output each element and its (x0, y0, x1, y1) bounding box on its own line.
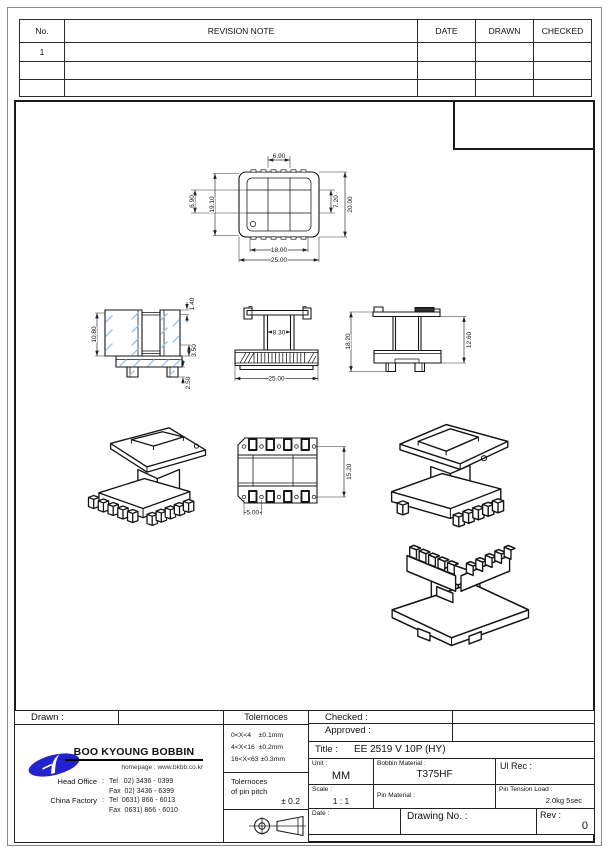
dimension-label: 3.50 (191, 344, 198, 357)
rev-cell: Rev : 0 (536, 808, 595, 835)
revision-row (20, 80, 592, 97)
projection-symbol-cell (223, 809, 309, 843)
pin-pitch-tolerance-cell: Tolernoces of pin pitch ± 0.2 (223, 772, 309, 810)
dimension-label: 15.20 (346, 463, 353, 480)
company-cell: BOO KYOUNG BOBBIN homepage : www.bkbb.co… (14, 724, 224, 843)
contact-row: China Factory : Tel 0631) 866 - 6013 (25, 796, 221, 806)
contact-label: China Factory (25, 796, 97, 806)
view-iso-bottom (392, 545, 528, 645)
view-side: 18.20 12.60 (345, 307, 473, 372)
bobbin-material-label: Bobbin Material : (377, 760, 426, 767)
drawing-no-cell: Drawing No. : (400, 808, 537, 835)
pin-tension-value: 2.0kg 5sec (546, 796, 582, 805)
revision-row (20, 62, 592, 80)
unit-label: Unit : (312, 760, 327, 767)
dimension-label: 1.40 (189, 297, 196, 310)
bobbin-material-cell: Bobbin Material : T375HF (373, 758, 496, 785)
tolerances-header: Tolernoces (244, 712, 288, 722)
pin-material-label: Pin Material : (377, 792, 415, 799)
rev-col-drawn: DRAWN (476, 20, 534, 43)
drawing-no-label: Drawing No. : (407, 811, 468, 822)
dimension-label: 6.90 (189, 195, 196, 208)
scale-value: 1 : 1 (309, 796, 373, 806)
unit-cell: Unit : MM (308, 758, 374, 785)
dimension-label: 5.00 (246, 510, 259, 517)
date-cell: Date : (308, 808, 401, 835)
bobbin-material-value: T375HF (374, 769, 495, 780)
contact-value: Fax 0631) 866 - 6010 (109, 806, 221, 816)
contact-value: Tel 02) 3436 - 0399 (109, 777, 221, 787)
drawing-title: EE 2519 V 10P (HY) (354, 744, 446, 755)
revision-table: No. REVISION NOTE DATE DRAWN CHECKED 1 (19, 19, 592, 97)
drawn-label: Drawn : (31, 712, 64, 723)
scale-label: Scale : (312, 786, 332, 793)
ul-rec-label: Ul Rec : (500, 761, 532, 771)
pin-pitch-value: ± 0.2 (281, 796, 300, 806)
title-label: Title : (315, 744, 338, 755)
dimension-label: 10.80 (91, 326, 98, 343)
date-label: Date : (312, 810, 329, 817)
dimension-label: 18.00 (271, 247, 288, 254)
rev-label: Rev : (540, 810, 561, 820)
dimension-label: 2.50 (185, 376, 192, 389)
revision-row: 1 (20, 43, 592, 62)
contact-row: Fax 02) 3436 - 6399 (25, 787, 221, 797)
rev-col-date: DATE (418, 20, 476, 43)
pin-tension-cell: Pin Tension Load : 2.0kg 5sec (495, 784, 595, 809)
rev-col-no: No. (20, 20, 65, 43)
first-angle-projection-icon (224, 810, 308, 842)
rev-no-cell: 1 (20, 43, 65, 62)
approved-label: Approved : (325, 725, 371, 736)
checked-label: Checked : (325, 712, 368, 723)
view-bottom: 5.00 15.20 (238, 438, 353, 517)
tolerance-lines: 0<X<4 ±0.1mm 4<X<16 ±0.2mm 16<X<63 ±0.3m… (224, 725, 308, 766)
pin-tension-label: Pin Tension Load : (499, 786, 552, 793)
title-cell: Title : EE 2519 V 10P (HY) (308, 741, 595, 759)
view-iso-top-left (89, 428, 206, 526)
view-iso-top-right (392, 425, 508, 527)
technical-drawing-views: 6.90 6.90 19.10 7.20 20.00 18.00 25.00 (14, 100, 595, 710)
dimension-label: 20.00 (347, 196, 354, 213)
drawn-value-cell (118, 710, 224, 725)
ul-rec-cell: Ul Rec : (495, 758, 595, 785)
unit-value: MM (309, 770, 373, 782)
rev-col-checked: CHECKED (534, 20, 592, 43)
dimension-label: 19.10 (209, 196, 216, 213)
checked-value-cell (452, 710, 595, 724)
rev-value: 0 (582, 820, 588, 832)
company-name: BOO KYOUNG BOBBIN (65, 746, 203, 761)
contact-label: Head Office (25, 777, 97, 787)
dimension-label: 25.00 (268, 376, 285, 383)
contact-value: Tel 0631) 866 - 6013 (109, 796, 221, 806)
checked-cell: Checked : (308, 710, 453, 724)
contact-row: Head Office : Tel 02) 3436 - 0399 (25, 777, 221, 787)
dimension-label: 12.60 (466, 331, 473, 348)
dimension-label: 7.20 (333, 195, 340, 208)
drawn-cell: Drawn : (14, 710, 119, 725)
view-section: 1.40 10.80 3.50 2.50 (91, 297, 198, 389)
tolerances-values-cell: 0<X<4 ±0.1mm 4<X<16 ±0.2mm 16<X<63 ±0.3m… (223, 724, 309, 773)
approved-value-cell (452, 723, 595, 742)
rev-col-note: REVISION NOTE (65, 20, 418, 43)
dimension-label: 25.00 (271, 257, 288, 264)
contact-row: Fax 0631) 866 - 6010 (25, 806, 221, 816)
view-top: 6.90 6.90 19.10 7.20 20.00 18.00 25.00 (189, 153, 354, 264)
pin-material-cell: Pin Material : (373, 784, 496, 809)
approved-cell: Approved : (308, 723, 453, 742)
tolerances-header-cell: Tolernoces (223, 710, 309, 725)
dimension-label: 6.90 (273, 153, 286, 160)
company-contacts: Head Office : Tel 02) 3436 - 0399 Fax 02… (25, 777, 221, 815)
company-homepage: homepage : www.bkbb.co.kr (65, 764, 203, 771)
drawing-sheet: No. REVISION NOTE DATE DRAWN CHECKED 1 (0, 0, 610, 853)
view-front: 8.30 25.00 (235, 307, 318, 383)
contact-value: Fax 02) 3436 - 6399 (109, 787, 221, 797)
scale-cell: Scale : 1 : 1 (308, 784, 374, 809)
dimension-label: 8.30 (273, 329, 286, 336)
dimension-label: 18.20 (345, 333, 352, 350)
pin-pitch-label: Tolernoces of pin pitch (231, 777, 267, 796)
